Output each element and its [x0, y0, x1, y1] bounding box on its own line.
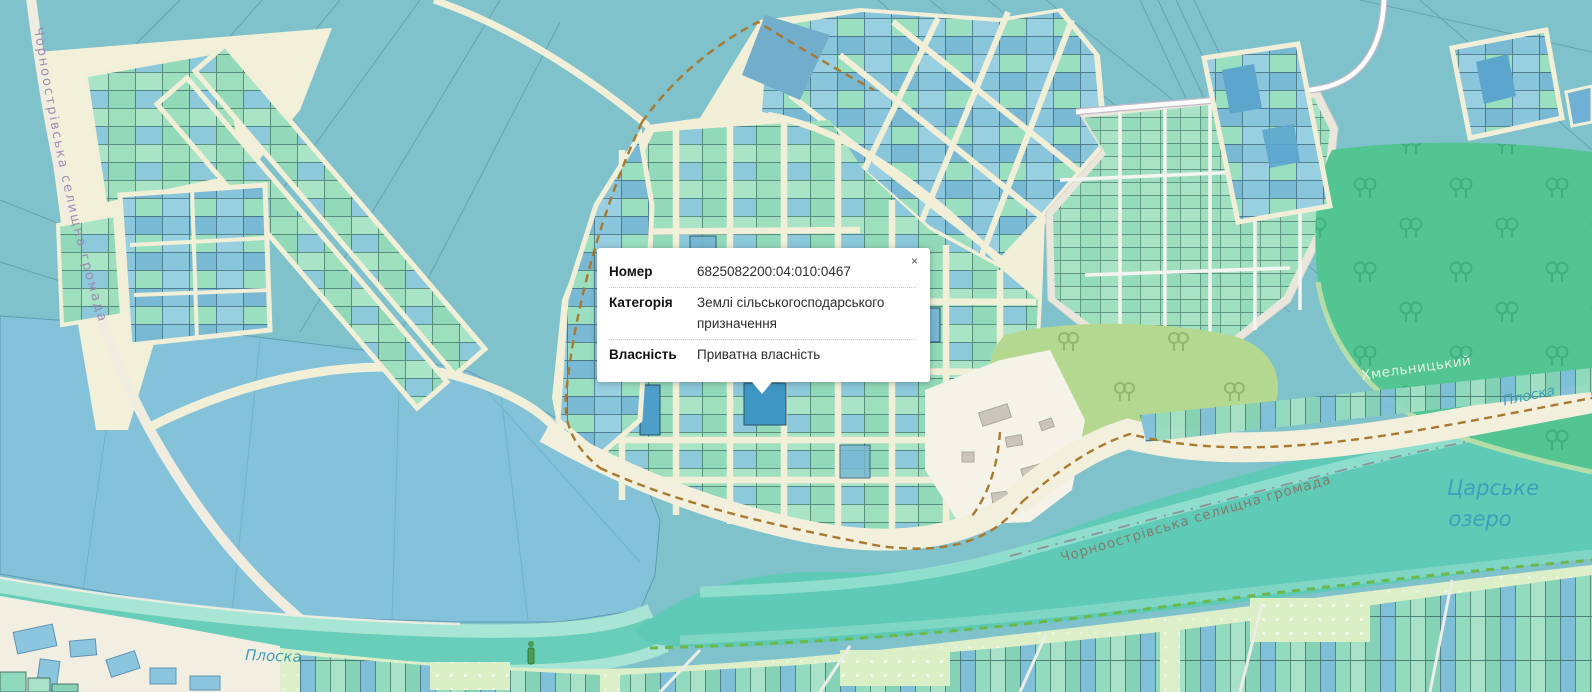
field-label: Номер: [609, 261, 697, 282]
field-value: Приватна власність: [697, 344, 916, 365]
popup-row-ownership: Власність Приватна власність: [609, 339, 916, 370]
river-label-west: Плоска: [245, 646, 302, 666]
lake-label-line2: озеро: [1448, 507, 1511, 531]
field-value: 6825082200:04:010:0467: [697, 261, 916, 282]
close-icon[interactable]: ×: [908, 252, 921, 270]
field-value: Землі сільськогосподарського призначення: [697, 292, 916, 334]
cadastral-map[interactable]: Чорноострівська селищна громада Чорноост…: [0, 0, 1592, 692]
parcel-info-popup: × Номер 6825082200:04:010:0467 Категорія…: [597, 248, 930, 382]
field-label: Власність: [609, 344, 697, 365]
popup-row-number: Номер 6825082200:04:010:0467: [609, 257, 916, 287]
lake-label-line1: Царське: [1447, 476, 1539, 500]
pillar-marker: [528, 641, 534, 664]
field-label: Категорія: [609, 292, 697, 334]
popup-row-category: Категорія Землі сільськогосподарського п…: [609, 287, 916, 339]
